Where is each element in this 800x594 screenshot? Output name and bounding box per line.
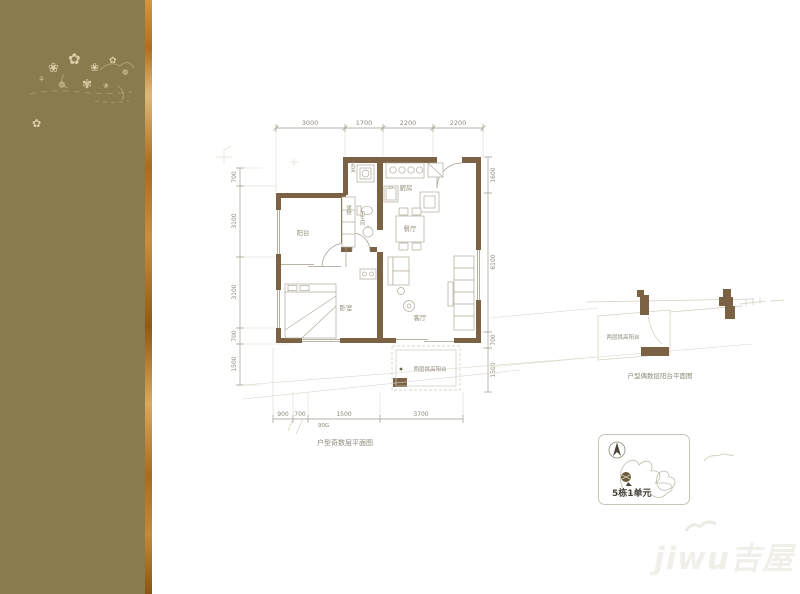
room-label-entry: 玄关 bbox=[349, 160, 356, 174]
dim-left-labels: 700 3100 3100 700 1500 bbox=[231, 171, 238, 372]
dim-label: 1700 bbox=[356, 119, 373, 127]
walls bbox=[276, 157, 481, 387]
hood-icon bbox=[428, 163, 443, 177]
dim-label: 700 bbox=[490, 334, 497, 346]
washer-icon bbox=[357, 165, 374, 182]
dim-label: 2200 bbox=[450, 119, 467, 127]
dim-label: 700 bbox=[231, 330, 238, 342]
keyplan-leader-squiggle bbox=[704, 454, 734, 461]
dim-label: 1600 bbox=[490, 167, 497, 182]
dim-top-labels: 3000 1700 2200 2200 bbox=[302, 119, 467, 127]
bed-icon bbox=[285, 284, 336, 338]
dim-label: 6100 bbox=[490, 254, 497, 269]
dim-label: 700 bbox=[294, 411, 306, 418]
dim-note: 90G bbox=[318, 423, 329, 429]
room-label-living: 客厅 bbox=[414, 313, 428, 322]
dim-label: 3100 bbox=[231, 284, 238, 299]
dim-label: 3000 bbox=[302, 119, 319, 127]
dim-bottom-labels: 900 700 1500 3700 90G bbox=[277, 411, 429, 429]
sofa-icon bbox=[388, 257, 409, 295]
stove-icon bbox=[386, 163, 424, 178]
watermark: jiwu吉屋 bbox=[654, 533, 794, 578]
room-label-balcony: 阳台 bbox=[297, 228, 310, 237]
watermark-wings-icon bbox=[682, 519, 722, 535]
dim-label: 3100 bbox=[231, 213, 238, 228]
compass-icon bbox=[609, 442, 625, 458]
keyplan-unit-marker bbox=[621, 472, 632, 486]
caption-side-plan: 户型偶数层阳台平面图 bbox=[628, 371, 693, 380]
dim-label: 1500 bbox=[231, 356, 238, 371]
dim-right bbox=[484, 157, 492, 392]
dim-extension-lines bbox=[216, 132, 492, 416]
dim-label: 1500 bbox=[490, 362, 497, 377]
dim-label: 900 bbox=[277, 411, 289, 418]
dim-right-labels: 1600 6100 700 1500 bbox=[490, 167, 497, 377]
room-label-bedroom: 卧室 bbox=[340, 303, 354, 312]
room-label-storage: 储物 bbox=[346, 204, 352, 216]
dim-left bbox=[236, 168, 244, 385]
dim-label: 2200 bbox=[400, 119, 417, 127]
fridge-icon bbox=[420, 192, 439, 212]
sink-icon bbox=[384, 186, 398, 202]
room-label-tall-balcony: 两层挑高阳台 bbox=[413, 365, 447, 373]
watermark-cn: 吉屋 bbox=[730, 541, 794, 577]
dim-label: 700 bbox=[231, 171, 238, 183]
caption-main-plan: 户型奇数层平面图 bbox=[317, 438, 373, 447]
room-label-bath: 卫生间 bbox=[359, 211, 365, 227]
page: ❀ ✿ ❀ ✿ ❁ ❁ ✾ ⚘ ❀ ✿ bbox=[0, 0, 800, 594]
room-label-kitchen: 厨房 bbox=[400, 183, 413, 192]
room-label-dining: 餐厅 bbox=[404, 224, 418, 233]
basin-icon bbox=[363, 225, 373, 237]
dim-label: 3700 bbox=[413, 411, 428, 418]
dresser-icon bbox=[360, 269, 376, 279]
tv-cabinet-icon bbox=[448, 256, 474, 330]
room-label-tall-balcony-side: 两层挑高阳台 bbox=[606, 333, 640, 341]
dim-label: 1500 bbox=[336, 411, 351, 418]
keyplan: 5栋1单元 bbox=[598, 434, 690, 505]
watermark-latin: jiwu bbox=[654, 541, 730, 577]
coffee-table-icon bbox=[404, 301, 415, 312]
keyplan-label: 5栋1单元 bbox=[612, 486, 652, 499]
